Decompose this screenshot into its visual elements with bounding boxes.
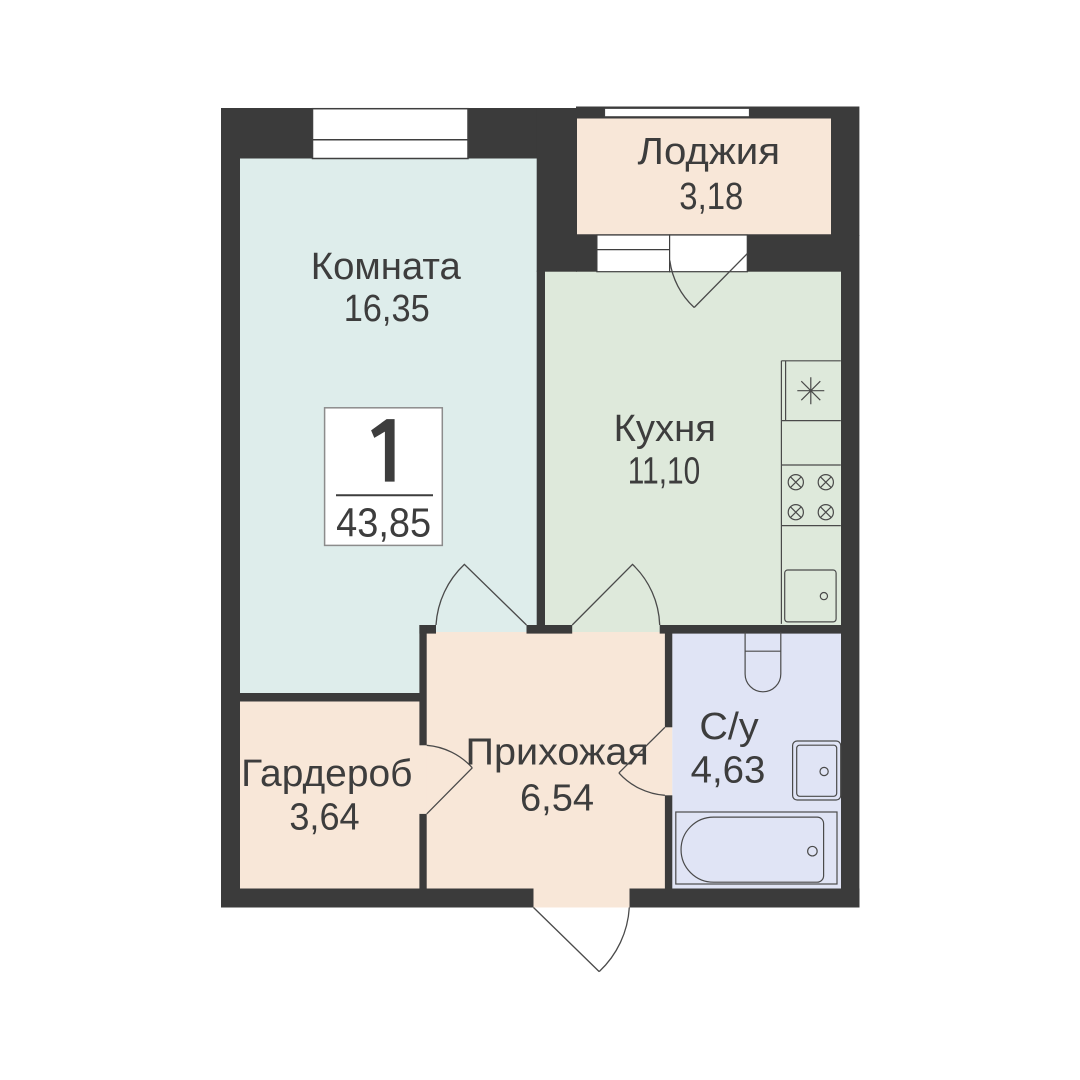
svg-text:16,35: 16,35 [344,288,430,330]
svg-text:4,63: 4,63 [691,750,766,792]
svg-text:3,64: 3,64 [289,797,359,839]
svg-text:6,54: 6,54 [520,778,594,820]
svg-text:11,10: 11,10 [628,450,700,492]
svg-text:Кухня: Кухня [614,408,716,450]
svg-text:Лоджия: Лоджия [638,131,781,173]
svg-text:Прихожая: Прихожая [466,731,649,773]
svg-text:3,18: 3,18 [679,176,743,218]
svg-text:Комната: Комната [311,246,462,288]
svg-text:Гардероб: Гардероб [241,753,412,795]
svg-text:С/у: С/у [699,706,758,748]
svg-text:43,85: 43,85 [336,500,431,546]
